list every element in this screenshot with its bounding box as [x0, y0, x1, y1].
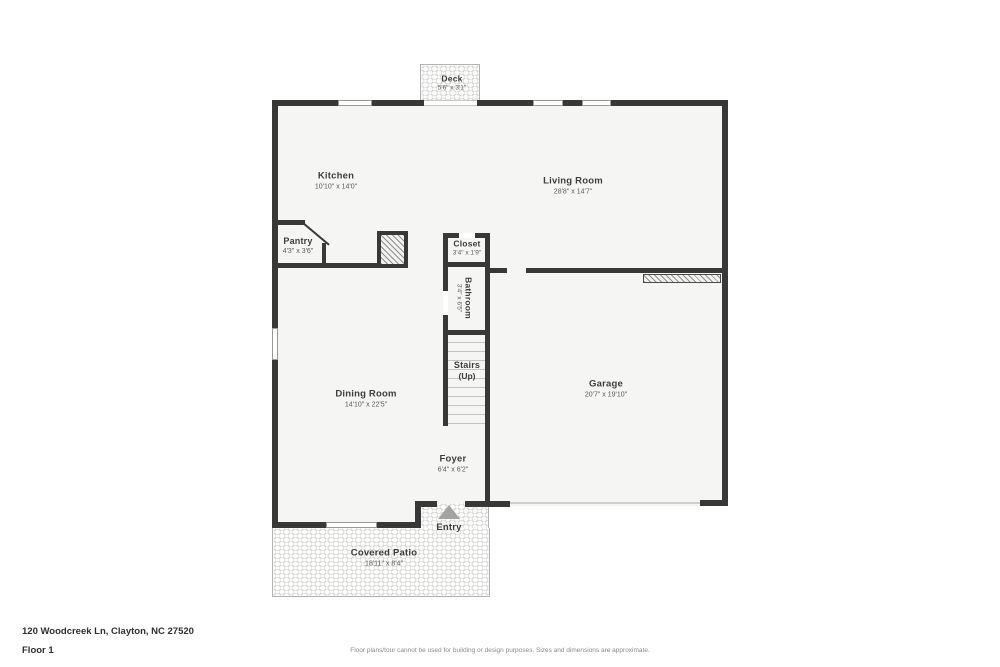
- room-name: Garage: [585, 379, 627, 391]
- room-label-stairs: Stairs (Up): [454, 360, 480, 382]
- window-kitchen: [338, 100, 372, 106]
- garage-header-hatch: [643, 274, 721, 283]
- room-dims: 14'10" x 22'5": [335, 400, 396, 409]
- wall-pantry-top: [272, 220, 305, 225]
- wall-entry-left: [415, 501, 437, 507]
- room-label-living-room: Living Room 28'8" x 14'7": [543, 176, 603, 197]
- window-dining-left: [272, 328, 278, 360]
- room-label-closet: Closet 3'4" x 1'9": [453, 238, 481, 257]
- entry-arrow-icon: [438, 505, 460, 519]
- wall-closet-bathroom-divider: [443, 262, 490, 267]
- room-label-kitchen: Kitchen 10'10" x 14'0": [315, 171, 357, 192]
- deck-door-opening: [424, 100, 477, 106]
- wall-garage-left: [485, 233, 490, 502]
- wall-exterior-right: [722, 100, 728, 506]
- floor-interior: [272, 100, 728, 506]
- room-label-covered-patio: Covered Patio 18'11" x 8'4": [351, 548, 417, 569]
- floor-plan-page: Deck 5'6" x 3'1" Kitchen 10'10" x 14'0" …: [0, 0, 1000, 667]
- room-name: Kitchen: [315, 171, 357, 183]
- room-dims: 6'4" x 6'2": [438, 465, 469, 474]
- window-living-room-2: [582, 100, 611, 106]
- room-dims: 20'7" x 19'10": [585, 390, 627, 399]
- room-label-dining-room: Dining Room 14'10" x 22'5": [335, 389, 396, 410]
- room-label-entry: Entry: [436, 522, 461, 534]
- room-name: Foyer: [438, 454, 469, 466]
- room-label-bathroom: Bathroom 3'4" x 6'5": [454, 277, 473, 319]
- wall-pantry-right: [322, 243, 326, 267]
- room-name: Pantry: [283, 236, 314, 247]
- bathroom-door-opening: [443, 291, 448, 315]
- wall-entry-right: [465, 501, 510, 507]
- room-dims: 10'10" x 14'0": [315, 182, 357, 191]
- room-dims: 18'11" x 8'4": [351, 559, 417, 568]
- disclaimer-text: Floor plans/tour cannot be used for buil…: [0, 647, 1000, 654]
- room-name: Stairs: [454, 360, 480, 371]
- room-name: Deck: [438, 73, 466, 84]
- wall-exterior-left: [272, 100, 278, 528]
- window-living-room-1: [533, 100, 563, 106]
- address-text: 120 Woodcreek Ln, Clayton, NC 27520: [22, 626, 194, 637]
- room-name: Closet: [453, 238, 481, 249]
- room-dims: 5'6" x 3'1": [438, 84, 466, 92]
- room-name: Entry: [436, 522, 461, 534]
- wall-bathroom-bottom: [443, 330, 490, 335]
- wall-living-room-bottom: [485, 268, 507, 273]
- window-dining-bottom: [326, 522, 377, 528]
- room-label-garage: Garage 20'7" x 19'10": [585, 379, 627, 400]
- room-name: Living Room: [543, 176, 603, 188]
- room-dims: (Up): [454, 371, 480, 382]
- wall-stairs-left: [443, 333, 448, 426]
- room-dims: 4'3" x 3'6": [283, 247, 314, 256]
- wall-living-room-bottom: [526, 268, 728, 273]
- room-dims: 3'4" x 6'5": [454, 277, 462, 319]
- room-name: Covered Patio: [351, 548, 417, 560]
- closet-door-opening: [459, 233, 475, 238]
- garage-door-opening: [510, 502, 700, 504]
- fireplace-column: [377, 231, 408, 268]
- room-dims: 3'4" x 1'9": [453, 249, 481, 257]
- room-label-deck: Deck 5'6" x 3'1": [438, 73, 466, 92]
- room-label-pantry: Pantry 4'3" x 3'6": [283, 236, 314, 256]
- wall-garage-bottom-right: [700, 500, 728, 506]
- room-name: Bathroom: [463, 277, 474, 319]
- room-label-foyer: Foyer 6'4" x 6'2": [438, 454, 469, 475]
- room-dims: 28'8" x 14'7": [543, 187, 603, 196]
- room-name: Dining Room: [335, 389, 396, 401]
